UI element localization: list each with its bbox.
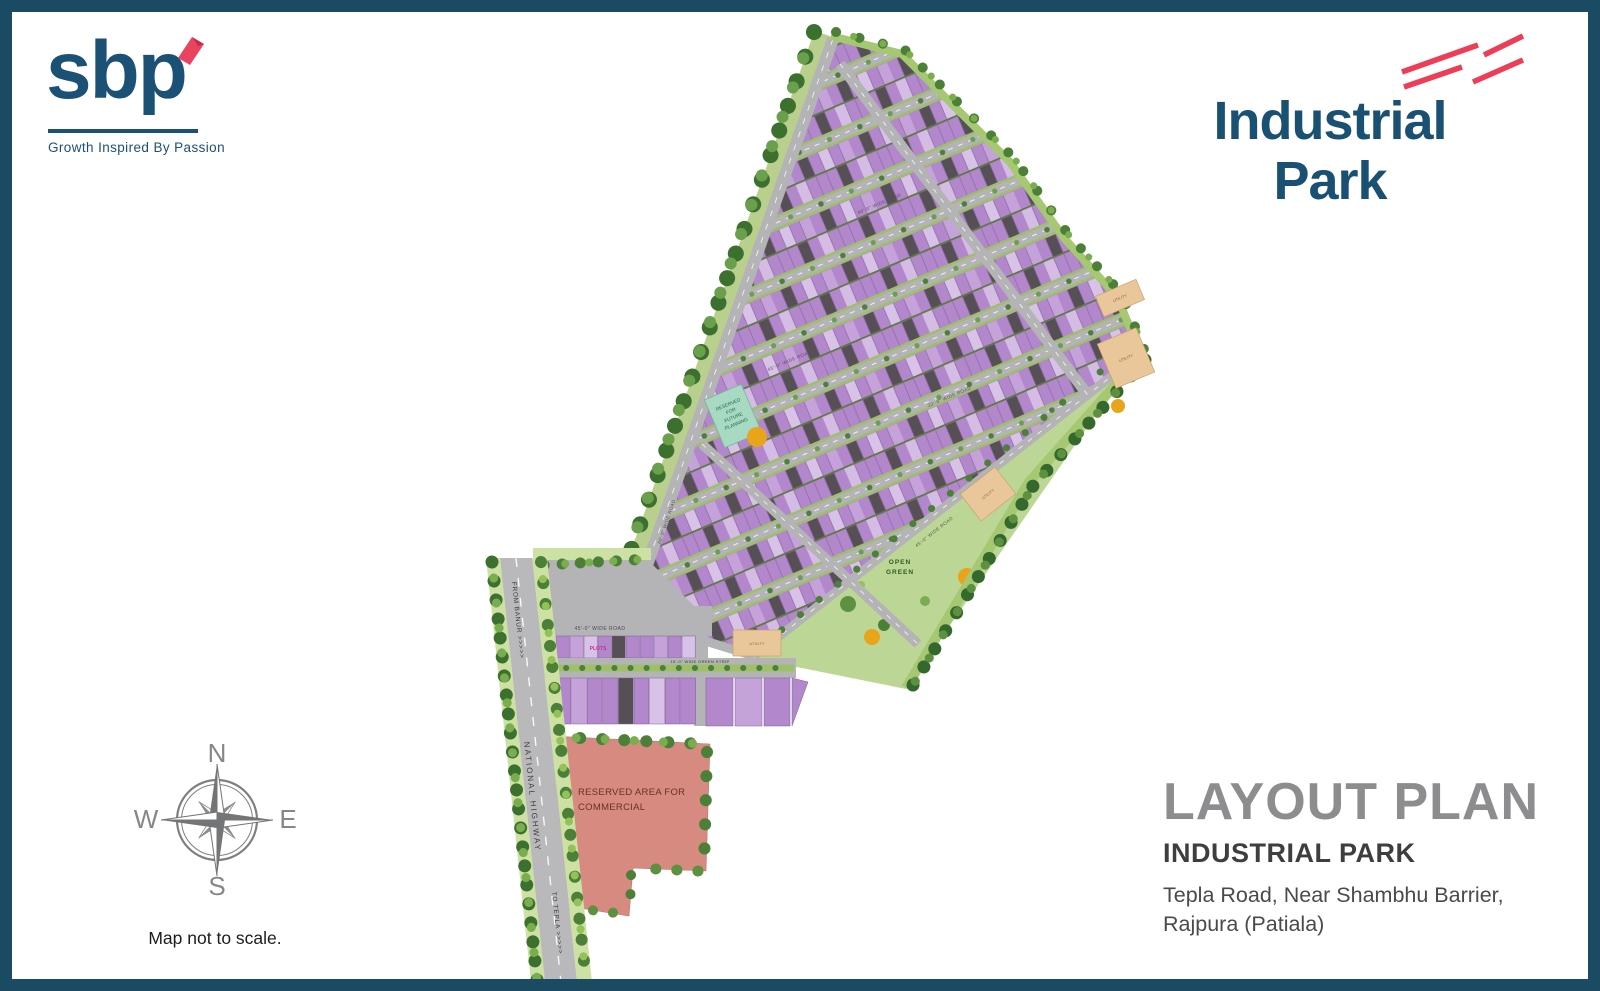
page-subtitle: INDUSTRIAL PARK	[1163, 838, 1563, 869]
utility-area: UTILITY	[733, 630, 781, 656]
stripes-icon	[1395, 28, 1530, 93]
orange-tree-icon	[1111, 399, 1125, 413]
svg-text:GREEN: GREEN	[886, 569, 914, 576]
green-strip-label: 15'-0" WIDE GREEN STRIP	[670, 659, 729, 664]
svg-text:UTILITY: UTILITY	[750, 641, 765, 646]
svg-text:RESERVED AREA FOR: RESERVED AREA FOR	[578, 787, 685, 798]
plot-row	[556, 678, 696, 724]
sbp-arrow-icon	[174, 34, 208, 68]
plot-block	[706, 678, 808, 726]
compass-cardinal-points	[161, 764, 273, 876]
svg-text:COMMERCIAL: COMMERCIAL	[578, 802, 645, 813]
compass-east-label: E	[279, 804, 296, 834]
compass-south-label: S	[208, 871, 225, 901]
map-scale-note: Map not to scale.	[105, 928, 325, 949]
svg-text:OPEN: OPEN	[889, 559, 911, 566]
page-title: LAYOUT PLAN	[1163, 775, 1563, 830]
plots-label: PLOTS	[590, 646, 607, 652]
industrial-park-logo-line2: Park	[1180, 150, 1480, 212]
orange-tree-icon	[864, 629, 880, 645]
address-line2: Rajpura (Patiala)	[1163, 912, 1324, 936]
title-block: LAYOUT PLAN INDUSTRIAL PARK Tepla Road, …	[1163, 775, 1563, 940]
compass-north-label: N	[208, 738, 227, 768]
sbp-logo-text: sbp	[46, 30, 186, 112]
compass-rose: N S W E	[132, 735, 302, 905]
sbp-tagline: Growth Inspired By Passion	[48, 140, 288, 155]
industrial-park-logo-line1: Industrial	[1180, 90, 1480, 152]
address-line1: Tepla Road, Near Shambhu Barrier,	[1163, 883, 1504, 907]
orange-tree-icon	[747, 427, 767, 447]
layout-plan-poster: RESERVED FOR FUTURE PLANNING UTILITY UTI…	[0, 0, 1600, 991]
address: Tepla Road, Near Shambhu Barrier, Rajpur…	[1163, 881, 1563, 940]
compass-west-label: W	[134, 804, 159, 834]
sbp-logo: sbp Growth Inspired By Passion	[46, 30, 186, 112]
road-45-label: 45'-0" WIDE ROAD	[574, 626, 625, 632]
sbp-logo-rule	[48, 129, 198, 133]
plot-row	[556, 636, 695, 658]
